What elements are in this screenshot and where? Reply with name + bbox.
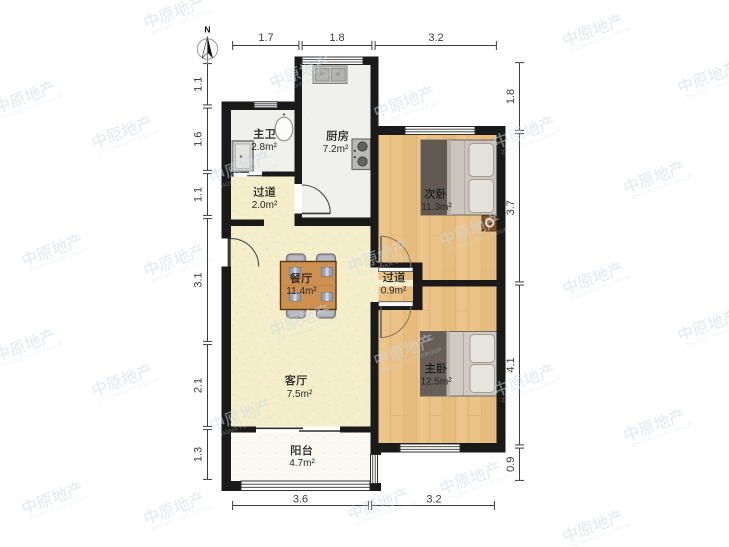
svg-text:N: N bbox=[204, 25, 210, 35]
svg-text:2.0m²: 2.0m² bbox=[252, 200, 278, 211]
svg-text:1.3: 1.3 bbox=[193, 447, 205, 462]
svg-text:4.1: 4.1 bbox=[505, 357, 517, 372]
svg-text:1.1: 1.1 bbox=[193, 187, 205, 202]
svg-text:3.1: 3.1 bbox=[193, 272, 205, 287]
svg-text:0.9m²: 0.9m² bbox=[381, 286, 407, 297]
svg-text:3.2: 3.2 bbox=[428, 32, 443, 44]
svg-text:1.7: 1.7 bbox=[258, 32, 273, 44]
svg-text:3.2: 3.2 bbox=[426, 494, 441, 506]
svg-text:7.5m²: 7.5m² bbox=[287, 389, 313, 400]
svg-text:0.9: 0.9 bbox=[505, 457, 517, 472]
svg-text:1.6: 1.6 bbox=[193, 132, 205, 147]
svg-text:1.8: 1.8 bbox=[505, 89, 517, 104]
svg-text:3.7: 3.7 bbox=[505, 200, 517, 215]
svg-text:2.8m²: 2.8m² bbox=[251, 142, 277, 153]
svg-text:2.1: 2.1 bbox=[193, 378, 205, 393]
svg-text:1.8: 1.8 bbox=[329, 32, 344, 44]
svg-text:3.6: 3.6 bbox=[293, 494, 308, 506]
svg-text:11.4m²: 11.4m² bbox=[286, 286, 317, 297]
svg-text:7.2m²: 7.2m² bbox=[323, 144, 349, 155]
svg-text:12.5m²: 12.5m² bbox=[420, 377, 452, 388]
svg-text:11.3m²: 11.3m² bbox=[421, 202, 452, 213]
svg-text:1.1: 1.1 bbox=[193, 77, 205, 92]
svg-text:4.7m²: 4.7m² bbox=[289, 458, 315, 469]
